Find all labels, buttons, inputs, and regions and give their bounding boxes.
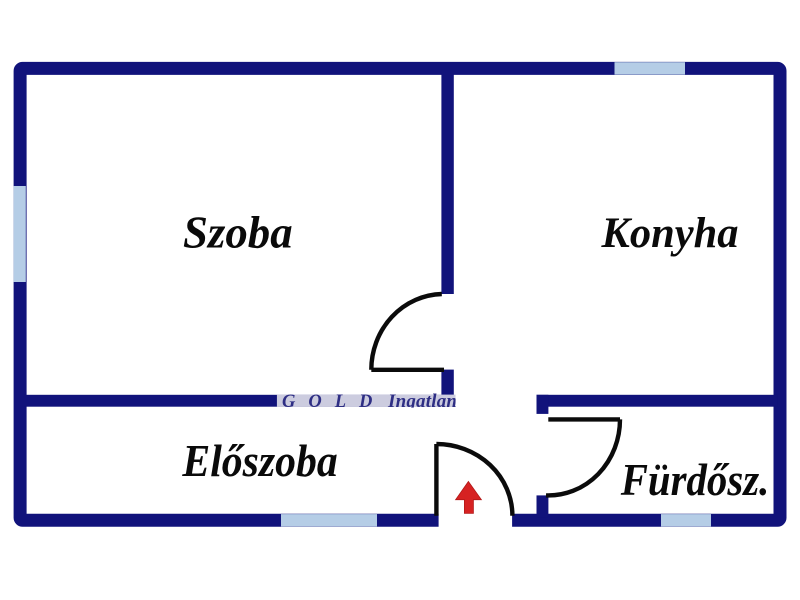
svg-text:Szoba: Szoba bbox=[183, 206, 293, 257]
svg-text:Fürdősz.: Fürdősz. bbox=[620, 454, 769, 505]
svg-text:Előszoba: Előszoba bbox=[181, 435, 337, 486]
svg-text:Konyha: Konyha bbox=[601, 210, 739, 257]
